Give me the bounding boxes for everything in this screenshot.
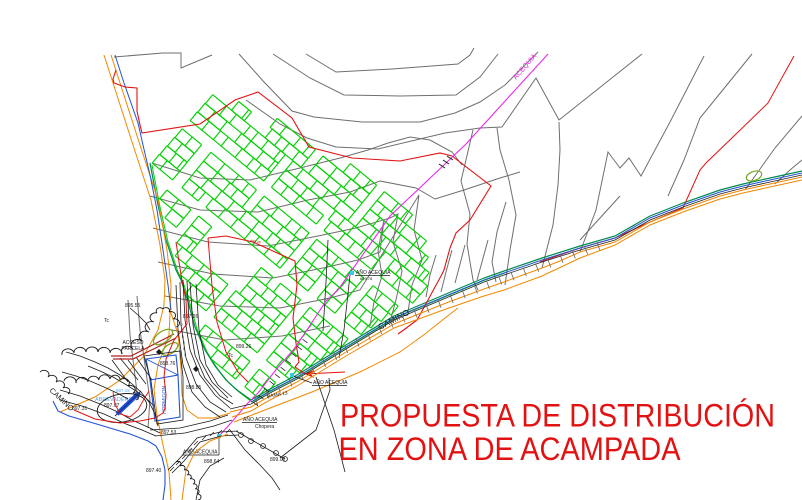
svg-text:5: 5 [183,347,185,351]
svg-text:Tc: Tc [228,353,234,359]
svg-text:2: 2 [181,323,183,327]
svg-text:897.31: 897.31 [72,406,88,412]
svg-text:AÑO ACEQUIA: AÑO ACEQUIA [356,269,391,276]
svg-text:898.76: 898.76 [160,361,176,367]
svg-text:Tc: Tc [104,318,110,324]
svg-text:897.40: 897.40 [146,468,162,474]
svg-text:7: 7 [182,329,184,333]
svg-text:899.78: 899.78 [360,276,373,281]
svg-text:8: 8 [182,335,184,339]
svg-text:EN ZONA DE ACAMPADA: EN ZONA DE ACAMPADA [339,431,682,467]
svg-text:AÑO ACEQUIA: AÑO ACEQUIA [243,416,278,423]
svg-text:3: 3 [184,353,186,357]
svg-text:Chopera: Chopera [255,424,274,430]
svg-text:897.19: 897.19 [116,388,130,393]
svg-text:PROPUESTA DE DISTRIBUCIÓN: PROPUESTA DE DISTRIBUCIÓN [340,398,775,434]
svg-text:899.26: 899.26 [236,344,252,350]
svg-text:9: 9 [183,341,185,345]
svg-text:895.55: 895.55 [125,303,141,309]
